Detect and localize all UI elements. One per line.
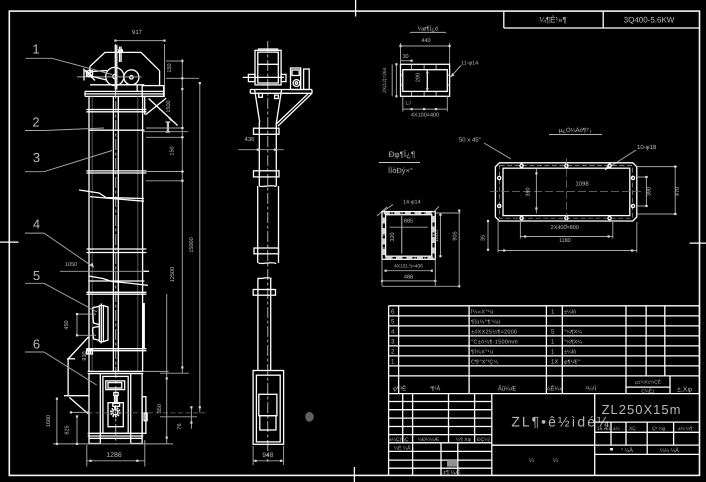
svg-text:1005: 1005 bbox=[434, 230, 440, 242]
svg-text:150: 150 bbox=[167, 63, 173, 72]
svg-text:1500: 1500 bbox=[166, 100, 172, 112]
svg-text:917: 917 bbox=[132, 29, 143, 36]
svg-text:35: 35 bbox=[481, 235, 487, 241]
svg-text:φ¶¹Æ°: φ¶¹Æ° bbox=[564, 360, 580, 366]
svg-text:390: 390 bbox=[647, 187, 653, 196]
svg-text:16 ÆL: 16 ÆL bbox=[597, 426, 611, 432]
svg-text:±¼: ±¼ bbox=[613, 426, 621, 432]
svg-text:ÐÇ¼|: ÐÇ¼| bbox=[477, 437, 490, 443]
svg-text:¶Ïü¼°¶'¼ü: ¶Ïü¼°¶'¼ü bbox=[471, 319, 501, 326]
svg-text:1: 1 bbox=[391, 359, 395, 366]
svg-text:±,Xφ: ±,Xφ bbox=[677, 387, 692, 394]
svg-text:° ¼Å: ° ¼Å bbox=[621, 447, 633, 454]
svg-text:6: 6 bbox=[33, 337, 40, 352]
svg-text:°¼¶X¼: °¼¶X¼ bbox=[564, 330, 582, 336]
svg-text:2: 2 bbox=[391, 349, 395, 356]
svg-text:¼ø¶Ï¿ó: ¼ø¶Ï¿ó bbox=[418, 25, 439, 33]
svg-text:¼Ð¼¼Æ: ¼Ð¼¼Æ bbox=[418, 437, 439, 443]
svg-text:3Q400-5.6KW: 3Q400-5.6KW bbox=[624, 16, 675, 25]
svg-text:10-φ18: 10-φ18 bbox=[637, 144, 657, 151]
svg-text:390: 390 bbox=[526, 187, 532, 196]
svg-text:µ±¼X±¼ÇÊ: µ±¼X±¼ÇÊ bbox=[635, 379, 661, 386]
svg-text:290: 290 bbox=[416, 73, 422, 82]
svg-text:±¼Íò: ±¼Íò bbox=[564, 309, 576, 316]
svg-text:φ¶¹Ê: φ¶¹Ê bbox=[393, 385, 406, 393]
svg-text:488: 488 bbox=[404, 275, 413, 281]
svg-text:Ðφ¶Ï¿¶: Ðφ¶Ï¿¶ bbox=[389, 150, 416, 159]
svg-text:905: 905 bbox=[453, 231, 459, 240]
svg-text:3: 3 bbox=[391, 339, 395, 346]
svg-text:²¼¹Ï: ²¼¹Ï bbox=[586, 385, 597, 393]
svg-text:5: 5 bbox=[391, 319, 395, 326]
svg-text:LJ: LJ bbox=[406, 101, 412, 107]
svg-text:1180: 1180 bbox=[559, 238, 571, 244]
svg-text:6: 6 bbox=[391, 309, 395, 316]
svg-text:°¼¶X¼: °¼¶X¼ bbox=[564, 340, 582, 346]
svg-text:Çʶ ¼g: Çʶ ¼g bbox=[652, 426, 666, 432]
svg-text:¼Ê ¼Å: ¼Ê ¼Å bbox=[394, 445, 411, 452]
svg-text:±¼Ç|¼Ç: ±¼Ç|¼Ç bbox=[389, 437, 409, 443]
svg-text:320: 320 bbox=[390, 232, 396, 241]
svg-text:XÇ: XÇ bbox=[629, 426, 636, 432]
svg-text:Ç¼Ê±: Ç¼Ê± bbox=[641, 388, 655, 395]
svg-text:30: 30 bbox=[402, 54, 408, 60]
svg-text:¶Ï¼X°¹ü: ¶Ï¼X°¹ü bbox=[471, 349, 494, 356]
svg-text:50 x 45°: 50 x 45° bbox=[459, 137, 482, 144]
svg-text:825: 825 bbox=[65, 425, 71, 434]
svg-text:4: 4 bbox=[33, 217, 40, 232]
svg-text:±¼ ¼¶: ±¼ ¼¶ bbox=[678, 426, 693, 432]
svg-text:930: 930 bbox=[82, 351, 88, 360]
svg-text:150: 150 bbox=[170, 146, 176, 155]
svg-text:'¶¹Å: '¶¹Å bbox=[430, 385, 440, 393]
svg-text:436: 436 bbox=[245, 136, 256, 143]
svg-text:2X400=800: 2X400=800 bbox=[551, 225, 579, 231]
svg-text:1: 1 bbox=[32, 42, 39, 57]
svg-text:1098: 1098 bbox=[575, 181, 589, 188]
svg-text:14-φ14: 14-φ14 bbox=[403, 199, 421, 205]
svg-text:948: 948 bbox=[262, 452, 273, 459]
svg-text:470: 470 bbox=[675, 187, 681, 196]
svg-text:450: 450 bbox=[64, 320, 70, 329]
svg-text:ÏÏòÐý×°: ÏÏòÐý×° bbox=[388, 166, 413, 175]
svg-text:1X: 1X bbox=[551, 359, 558, 366]
svg-text:4X101.5=406: 4X101.5=406 bbox=[394, 264, 423, 270]
svg-text:Ãû¼Æ: Ãû¼Æ bbox=[498, 385, 516, 393]
svg-text:440: 440 bbox=[421, 38, 430, 44]
svg-text:12500: 12500 bbox=[170, 267, 176, 282]
svg-text:15000: 15000 bbox=[189, 237, 195, 252]
svg-text:76: 76 bbox=[177, 423, 183, 429]
svg-text:ZL250X15m: ZL250X15m bbox=[602, 402, 682, 417]
svg-text:Ï¼»X°¹ü: Ï¼»X°¹ü bbox=[471, 309, 494, 316]
svg-text:±óXX25¼¶=2000: ±óXX25¼¶=2000 bbox=[471, 329, 517, 336]
svg-text:±¼Íò: ±¼Íò bbox=[564, 349, 576, 356]
svg-text:2X(12)=264: 2X(12)=264 bbox=[382, 67, 388, 93]
svg-text:11-φ14: 11-φ14 bbox=[461, 61, 478, 67]
svg-text:°C±ò¼¶-1500mm: °C±ò¼¶-1500mm bbox=[471, 339, 518, 346]
svg-text:¼¼ ¼Å: ¼¼ ¼Å bbox=[660, 447, 679, 454]
svg-text:C¶¹"X°¹Ç¼: C¶¹"X°¹Ç¼ bbox=[471, 360, 498, 366]
svg-text:2: 2 bbox=[32, 115, 39, 130]
svg-text:5: 5 bbox=[33, 268, 40, 283]
svg-text:1286: 1286 bbox=[106, 452, 122, 459]
svg-text:3: 3 bbox=[33, 150, 40, 165]
svg-text:±¶ ¼Æ: ±¶ ¼Æ bbox=[443, 470, 461, 476]
svg-text:4X100=400: 4X100=400 bbox=[411, 113, 439, 119]
svg-text:¼¶Ê¹»¶: ¼¶Ê¹»¶ bbox=[539, 16, 567, 25]
svg-text:4: 4 bbox=[391, 329, 395, 336]
svg-text:885: 885 bbox=[404, 219, 413, 225]
svg-text:1680: 1680 bbox=[46, 415, 52, 427]
svg-text:¼¶ Xφ: ¼¶ Xφ bbox=[456, 437, 472, 443]
svg-text:350: 350 bbox=[157, 404, 163, 413]
svg-text:µ¿Ò¼Áò¶¹'¡: µ¿Ò¼Áò¶¹'¡ bbox=[559, 126, 592, 134]
svg-text:¼Ê¼»: ¼Ê¼» bbox=[545, 385, 563, 393]
svg-text:1050: 1050 bbox=[65, 262, 77, 268]
